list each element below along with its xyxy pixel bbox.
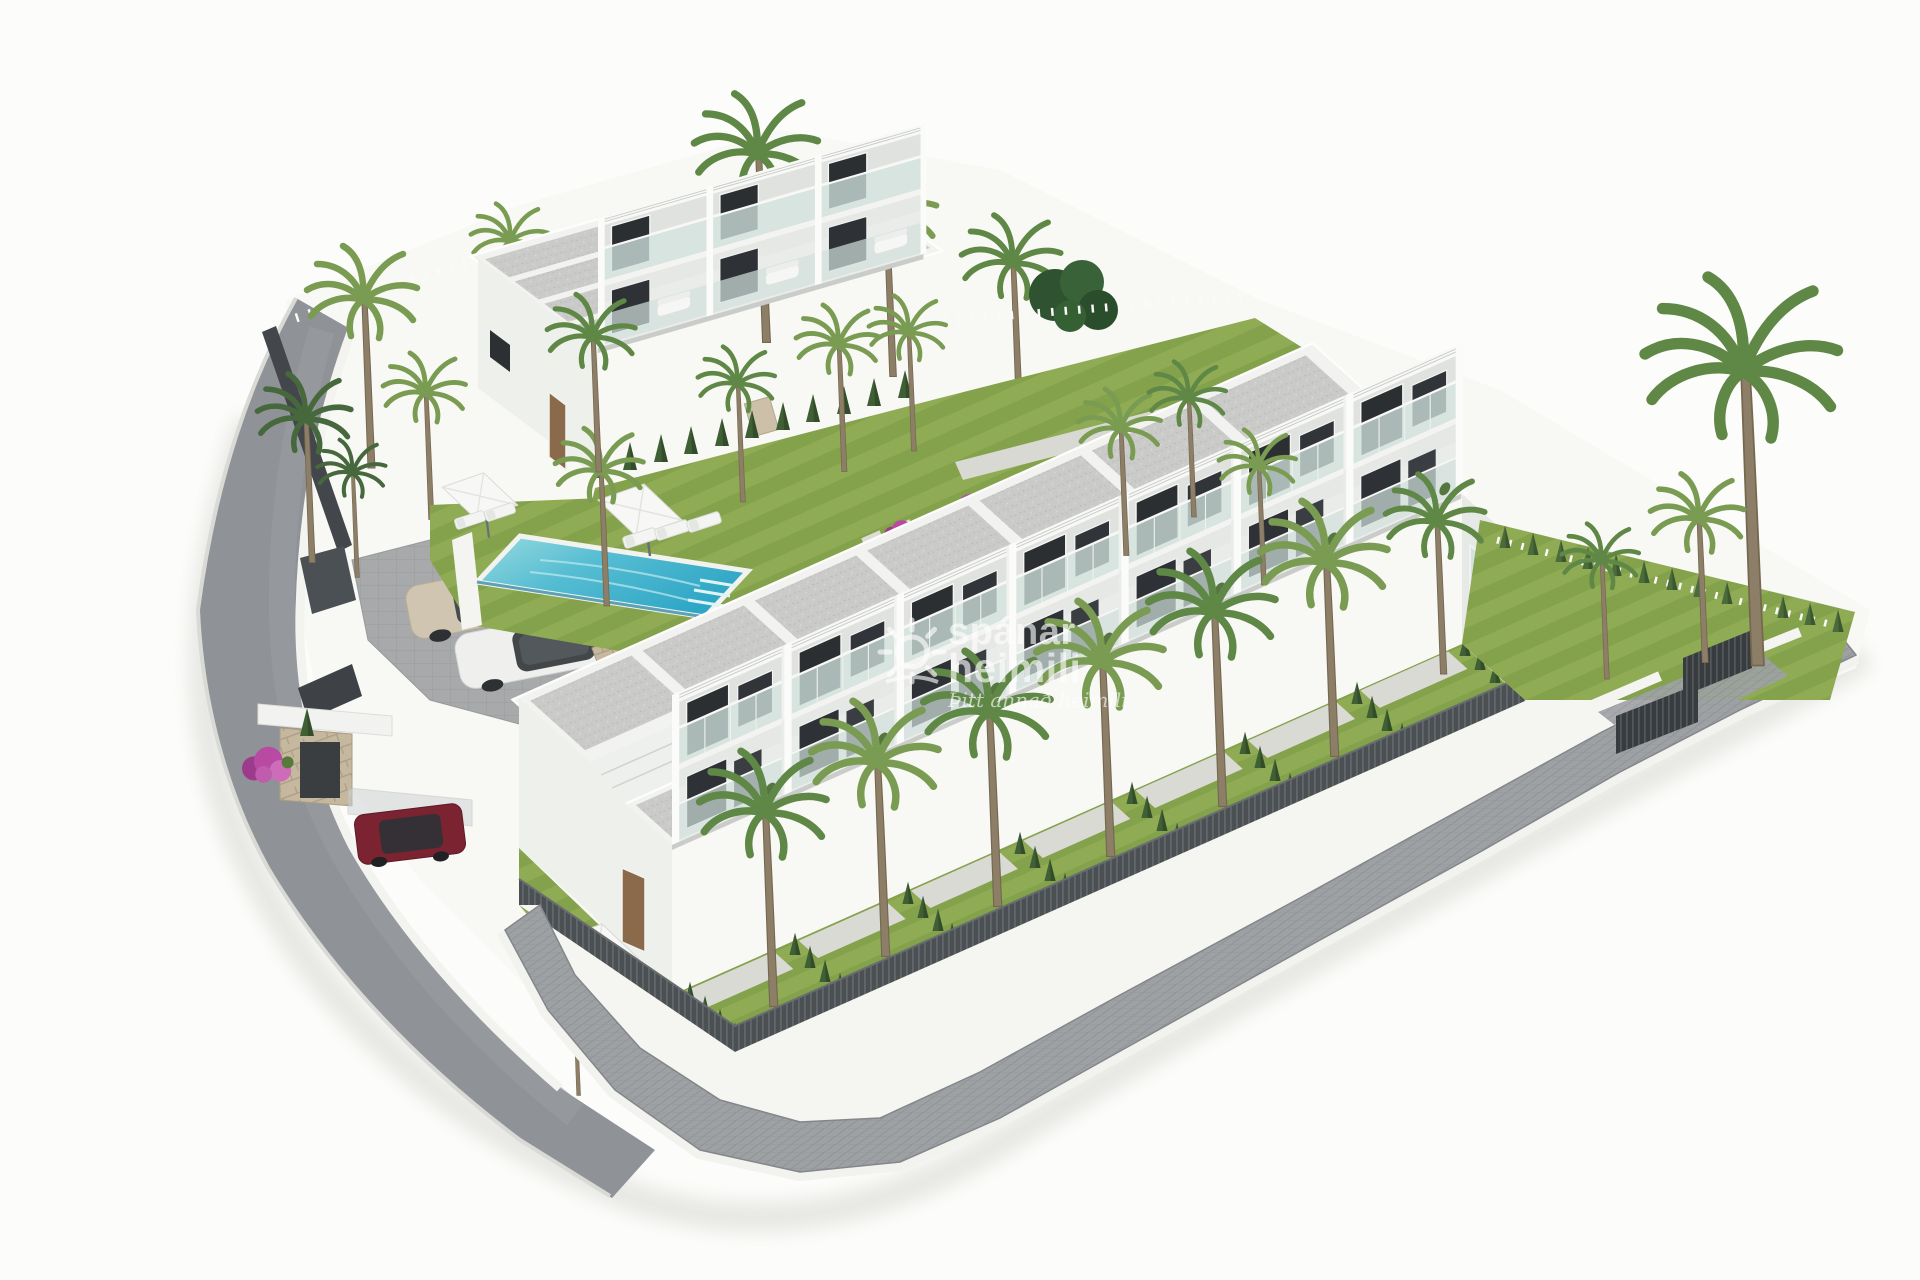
gate-opening xyxy=(300,742,340,798)
watermark-brand-bottom: heimili xyxy=(948,645,1081,691)
end-unit-door xyxy=(622,868,645,952)
watermark-tagline: Þitt annað heimili xyxy=(947,688,1128,712)
architectural-render: spánar heimili Þitt annað heimili xyxy=(0,0,1920,1280)
render-canvas: spánar heimili Þitt annað heimili xyxy=(0,0,1920,1280)
